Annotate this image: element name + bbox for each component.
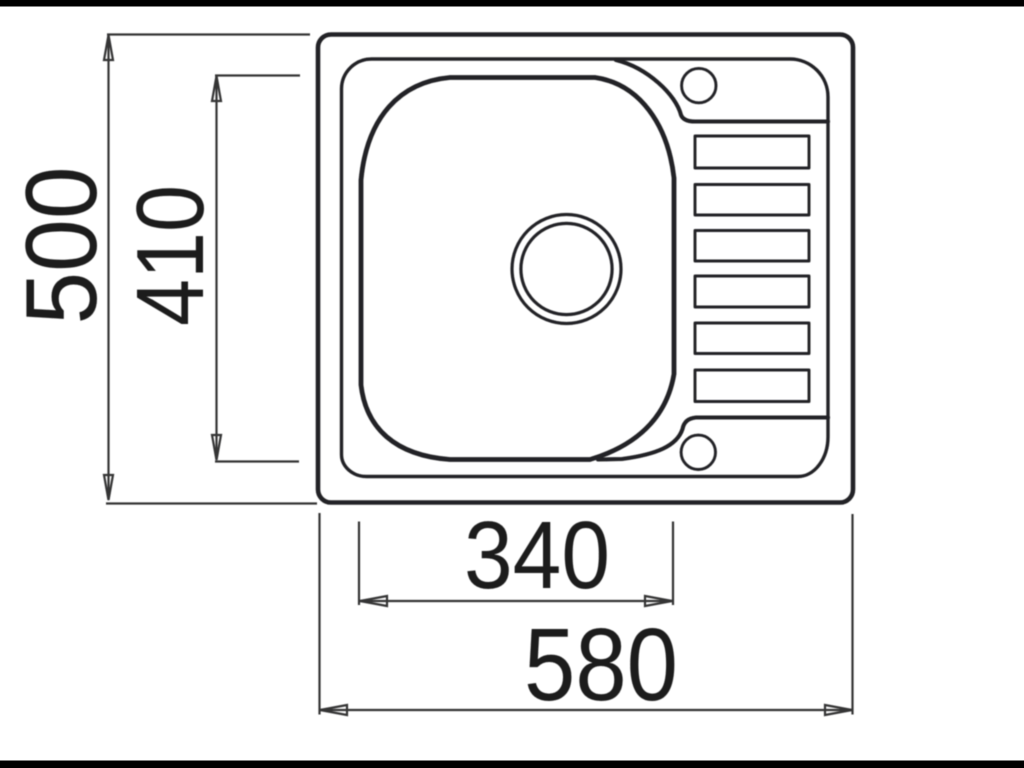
svg-text:340: 340 [464, 502, 610, 609]
svg-text:500: 500 [6, 167, 118, 325]
svg-text:580: 580 [524, 607, 678, 722]
svg-text:410: 410 [117, 185, 224, 326]
